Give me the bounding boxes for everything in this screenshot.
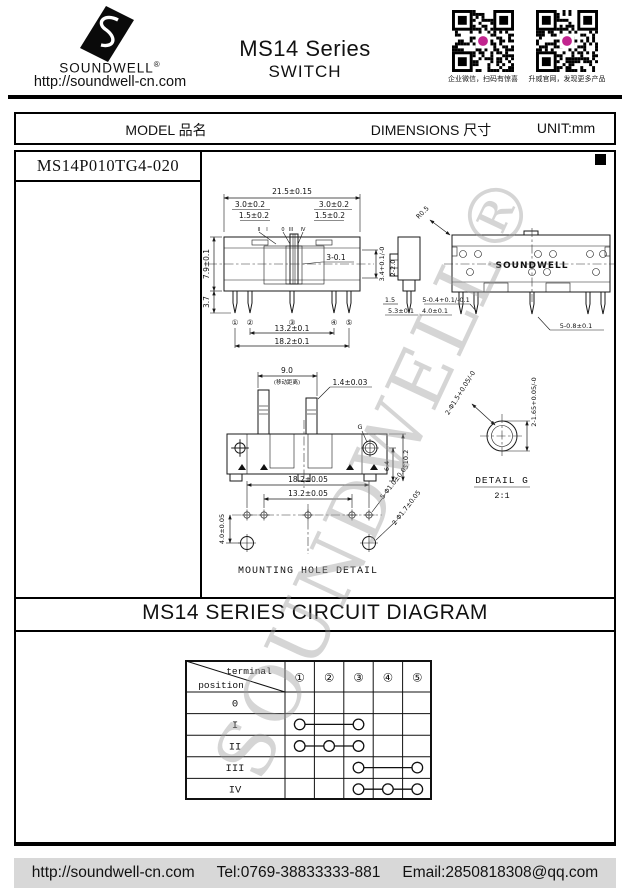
qr-wechat: 企业微信，扫码有惊喜 (452, 10, 514, 77)
soundwell-logo (78, 6, 138, 63)
footer-tel: Tel:0769-38833333-881 (217, 864, 381, 882)
dim-label: 6.4 (383, 461, 391, 471)
dim-label: 1.5±0.2 (315, 211, 345, 220)
detail-title: DETAIL G (475, 475, 529, 486)
dim-label: 10.2 (402, 450, 410, 464)
dim-label: 2-Φ1.7±0.05 (390, 489, 422, 527)
dim-label: 4.0±0.1 (422, 307, 448, 315)
dim-label: 3.0±0.2 (235, 200, 265, 209)
dim-label: 13.2±0.05 (288, 489, 328, 498)
terminal-header: ③ (353, 671, 363, 685)
dim-label: 3.0±0.2 (319, 200, 349, 209)
circuit-table: terminal position ① ② ③ ④ ⑤ 0 I II III I… (185, 660, 432, 800)
section-divider (16, 630, 614, 632)
dim-label: 9.0 (281, 366, 293, 375)
terminal-header: ④ (383, 671, 393, 685)
footer-email: Email:2850818308@qq.com (402, 864, 598, 882)
dimensions-panel: MS14P010TG4-020 21.5±0.15 3.0±0.2 3.0±0.… (14, 150, 616, 846)
unit-label: UNIT:mm (521, 120, 611, 136)
dim-label: R0.5 (415, 205, 431, 221)
dim-label: 18.2±0.1 (275, 337, 310, 346)
detail-scale: 2:1 (494, 491, 509, 501)
registered-mark: ® (154, 60, 161, 69)
position-mark: III (289, 227, 293, 233)
position-row-label: 0 (232, 698, 238, 710)
dim-label: 5-0.8±0.1 (560, 322, 593, 330)
dim-label: 2-Φ1.5+0.05/-0 (444, 369, 478, 416)
qr-website: 升威官网，发现更多产品 (536, 10, 598, 77)
dim-label: 18.2±0.05 (288, 475, 328, 484)
dim-label: 3.4+0.1/-0 (378, 247, 386, 282)
series-title: MS14 Series (215, 36, 395, 62)
corner-terminal-label: terminal (226, 666, 272, 677)
position-mark: I (266, 227, 267, 233)
dim-label: 1.4±0.03 (333, 378, 368, 387)
back-view: SOUNDWELL 5-0.8±0.1 (444, 228, 614, 330)
product-type: SWITCH (215, 62, 395, 82)
travel-view: 9.0 (移动距离) 1.4±0.03 G (227, 366, 410, 488)
header-website: http://soundwell-cn.com (10, 74, 210, 90)
travel-note: (移动距离) (274, 378, 300, 386)
dim-label: 2-2.0 (389, 260, 397, 277)
header-divider (8, 95, 622, 99)
dim-label: 13.2±0.1 (275, 324, 310, 333)
qr-code-icon (452, 10, 514, 72)
dim-label: 5.3±0.1 (388, 307, 414, 315)
footer-bar: http://soundwell-cn.com Tel:0769-3883333… (14, 858, 616, 888)
model-label: MODEL 品名 (76, 120, 256, 140)
dim-label: 3.7 (202, 296, 211, 308)
position-row-label: IV (229, 785, 242, 797)
footer-website: http://soundwell-cn.com (32, 864, 195, 882)
position-row-label: I (232, 720, 238, 732)
terminal-header: ② (324, 671, 334, 685)
dim-label: 4.0±0.05 (218, 514, 226, 544)
position-row-label: III (226, 763, 245, 775)
qr-wechat-caption: 企业微信，扫码有惊喜 (438, 74, 528, 84)
dim-label: 1.5±0.2 (239, 211, 269, 220)
info-bar: MODEL 品名 DIMENSIONS 尺寸 UNIT:mm (14, 112, 616, 145)
qr-website-caption: 升威官网，发现更多产品 (522, 74, 612, 84)
dim-label: 3-0.1 (326, 253, 346, 262)
mounting-caption: MOUNTING HOLE DETAIL (238, 566, 378, 577)
dim-label: 2-1.65+0.05/-0 (530, 377, 538, 427)
terminal-header: ① (295, 671, 305, 685)
terminal-number: ② (247, 318, 254, 327)
detail-g: 2-Φ1.5+0.05/-0 2-1.65+0.05/-0 DETAIL G 2… (444, 369, 538, 501)
qr-code-icon (536, 10, 598, 72)
detail-ref: G (357, 423, 362, 431)
position-row-label: II (229, 742, 242, 754)
datasheet-page: SOUNDWELL® http://soundwell-cn.com MS14 … (0, 0, 630, 894)
position-mark: IV (301, 227, 306, 233)
mounting-hole-detail: 18.2±0.05 13.2±0.05 4.0±0.05 5-Φ1.0±0.05… (218, 463, 422, 577)
corner-position-label: position (198, 680, 244, 691)
dim-label: 7.9±0.1 (202, 249, 211, 279)
terminal-number: ⑤ (346, 318, 353, 327)
circuit-diagram-title: MS14 SERIES CIRCUIT DIAGRAM (16, 601, 614, 625)
dim-label: 1.5 (385, 296, 395, 304)
dim-label: 21.5±0.15 (272, 187, 312, 196)
front-view: 21.5±0.15 3.0±0.2 3.0±0.2 1.5±0.2 1.5±0.… (202, 187, 386, 348)
terminal-header: ⑤ (412, 671, 422, 685)
terminal-number: ① (232, 318, 239, 327)
terminal-number: ④ (331, 318, 338, 327)
technical-drawing: 21.5±0.15 3.0±0.2 3.0±0.2 1.5±0.2 1.5±0.… (202, 152, 614, 597)
section-divider (16, 597, 614, 599)
model-name: MS14P010TG4-020 (16, 152, 202, 182)
dimensions-label: DIMENSIONS 尺寸 (336, 120, 526, 140)
